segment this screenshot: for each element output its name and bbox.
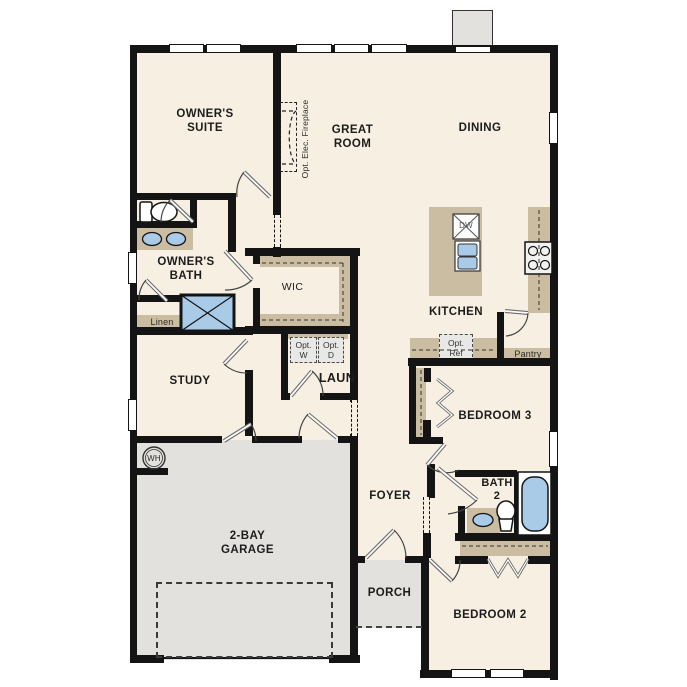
window-greatroom-3 <box>371 44 407 53</box>
window-study <box>128 399 137 431</box>
opt-ref-label: Opt. Ref <box>448 338 464 358</box>
window-bedroom2-1 <box>451 669 486 678</box>
wall-laundry-left <box>281 330 288 400</box>
wall-bath2-bottom <box>455 533 553 541</box>
fireplace-outline <box>280 102 297 172</box>
cased-opening-suite <box>274 215 281 247</box>
wic-shelf-top <box>260 256 350 267</box>
cased-opening-foyer <box>423 497 430 533</box>
opt-washer-label: Opt. W <box>295 340 311 360</box>
label-great-room: GREAT ROOM <box>300 124 405 151</box>
chimney-bump <box>452 10 493 48</box>
window-bedroom2-2 <box>490 669 524 678</box>
label-kitchen: KITCHEN <box>406 306 506 320</box>
wall-toilet-stub <box>190 197 197 223</box>
wall-wic-top <box>245 248 360 256</box>
wall-wh-stub <box>133 468 168 475</box>
wall-bedroom2-top-b <box>528 556 553 564</box>
bedroom2-closet <box>460 541 551 556</box>
wall-kitchen-bottom <box>408 358 553 366</box>
wall-bedroom3-bottom <box>409 437 443 444</box>
label-dishwasher: DW <box>455 221 477 230</box>
wall-bedroom3-closet-b <box>423 420 431 438</box>
label-pantry: Pantry <box>506 349 550 359</box>
window-bedroom3 <box>549 431 558 467</box>
label-owners-suite: OWNER'S SUITE <box>150 108 260 135</box>
owners-vanity <box>135 228 193 250</box>
wall-wic-left-b <box>253 288 260 328</box>
wall-left <box>130 45 137 663</box>
wall-study-top <box>133 327 253 335</box>
opt-washer-box: Opt. W <box>290 337 317 363</box>
garage-door-outline <box>156 582 333 658</box>
window-greatroom-1 <box>296 44 332 53</box>
label-linen: Linen <box>138 317 186 327</box>
label-dining: DINING <box>430 122 530 136</box>
wall-bath-right <box>228 198 236 252</box>
wall-bedroom3-closet-a <box>424 368 431 382</box>
wall-foyer-right-a <box>427 464 435 498</box>
label-laundry: LAUN <box>312 371 362 386</box>
wall-bedroom2-bottom <box>420 670 558 678</box>
wall-wic-bottom <box>245 326 358 334</box>
window-suite-1 <box>169 44 204 53</box>
wall-porch-top-a <box>352 556 365 563</box>
wall-study-right <box>245 370 253 436</box>
wall-laundry-bottom-b <box>320 393 358 400</box>
bath2-vanity <box>467 508 500 533</box>
wall-garage-top-b <box>252 436 302 443</box>
label-water-heater: WH <box>143 454 165 463</box>
kitchen-counter-right <box>528 207 551 313</box>
label-bedroom-2: BEDROOM 2 <box>435 609 545 623</box>
window-chimney <box>455 46 491 53</box>
label-foyer: FOYER <box>358 490 422 504</box>
label-fireplace: Opt. Elec. Fireplace <box>300 84 310 194</box>
wall-suite-bottom <box>133 193 236 200</box>
wall-bedroom3-left <box>409 366 416 444</box>
label-garage: 2-BAY GARAGE <box>195 530 300 557</box>
wall-bath2-left <box>458 506 465 534</box>
label-bedroom-3: BEDROOM 3 <box>445 410 545 424</box>
floor-plan: Opt. W Opt. D Opt. Ref <box>0 0 687 687</box>
label-porch: PORCH <box>357 587 422 601</box>
wall-bedroom2-top-a <box>455 556 488 564</box>
wall-wic-left-a <box>253 256 260 264</box>
wall-garage-bottom-b <box>329 655 360 663</box>
window-dining <box>549 112 558 144</box>
wall-porch-top-b <box>405 556 423 563</box>
wall-garage-top-c <box>338 436 358 443</box>
wall-foyer-right-b <box>423 533 431 558</box>
window-greatroom-2 <box>334 44 369 53</box>
wic-shelf-right <box>339 267 350 326</box>
wall-bedroom2-left <box>421 556 429 678</box>
label-bath-2: BATH 2 <box>474 477 520 503</box>
window-owners-bath <box>128 252 137 284</box>
wall-bath2-top <box>455 470 517 477</box>
wall-laundry-bottom-a <box>281 393 290 400</box>
porch-edge <box>356 626 422 628</box>
cased-opening-hall <box>351 400 358 436</box>
wic-shelf-bottom <box>260 314 340 326</box>
opt-dryer-label: Opt. D <box>323 340 339 360</box>
wall-toilet-niche <box>133 221 197 228</box>
label-owners-bath: OWNER'S BATH <box>140 256 232 283</box>
wall-garage-top-a <box>133 436 222 443</box>
label-study: STUDY <box>145 375 235 389</box>
wall-garage-right <box>350 434 358 663</box>
window-suite-2 <box>206 44 241 53</box>
opt-dryer-box: Opt. D <box>318 337 344 363</box>
label-wic: WIC <box>265 281 320 293</box>
